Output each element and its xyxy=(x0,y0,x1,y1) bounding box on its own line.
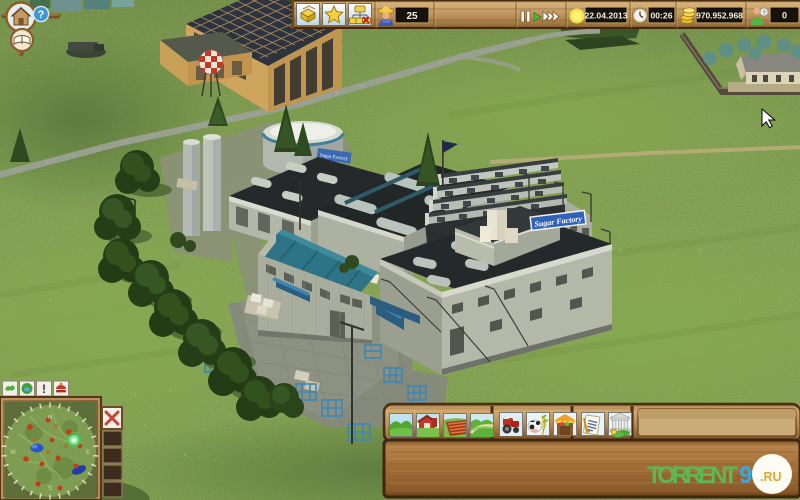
svg-text:00:26: 00:26 xyxy=(651,11,673,21)
svg-text:!: ! xyxy=(42,382,46,396)
svg-text:9: 9 xyxy=(739,462,752,489)
svg-text:25: 25 xyxy=(406,11,418,22)
svg-text:?: ? xyxy=(38,9,45,21)
svg-text:970.952.968: 970.952.968 xyxy=(696,11,743,21)
svg-text:0: 0 xyxy=(782,11,787,21)
svg-text:22.04.2013: 22.04.2013 xyxy=(584,11,627,21)
svg-text:N: N xyxy=(48,415,52,421)
svg-text:TORRENT: TORRENT xyxy=(647,462,738,489)
svg-text:W: W xyxy=(10,450,16,456)
svg-text:E: E xyxy=(86,450,90,456)
svg-text:S: S xyxy=(48,486,52,492)
svg-text:.RU: .RU xyxy=(760,470,782,484)
